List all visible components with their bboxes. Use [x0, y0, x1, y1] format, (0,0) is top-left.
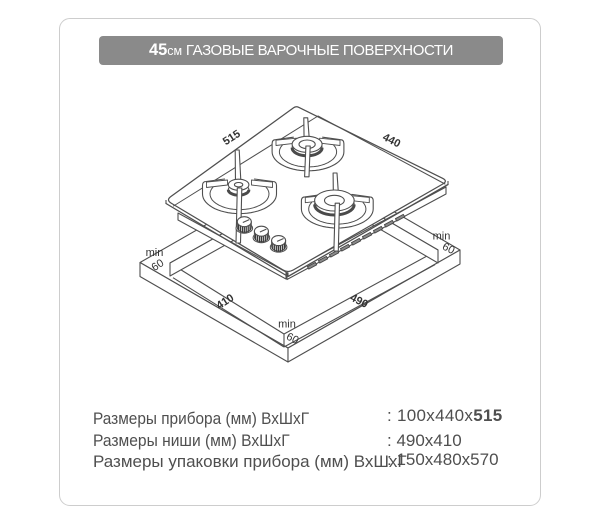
svg-text:min: min [146, 247, 164, 259]
svg-text:440: 440 [380, 131, 402, 150]
svg-text:515: 515 [221, 128, 243, 148]
svg-text:min: min [278, 319, 296, 331]
